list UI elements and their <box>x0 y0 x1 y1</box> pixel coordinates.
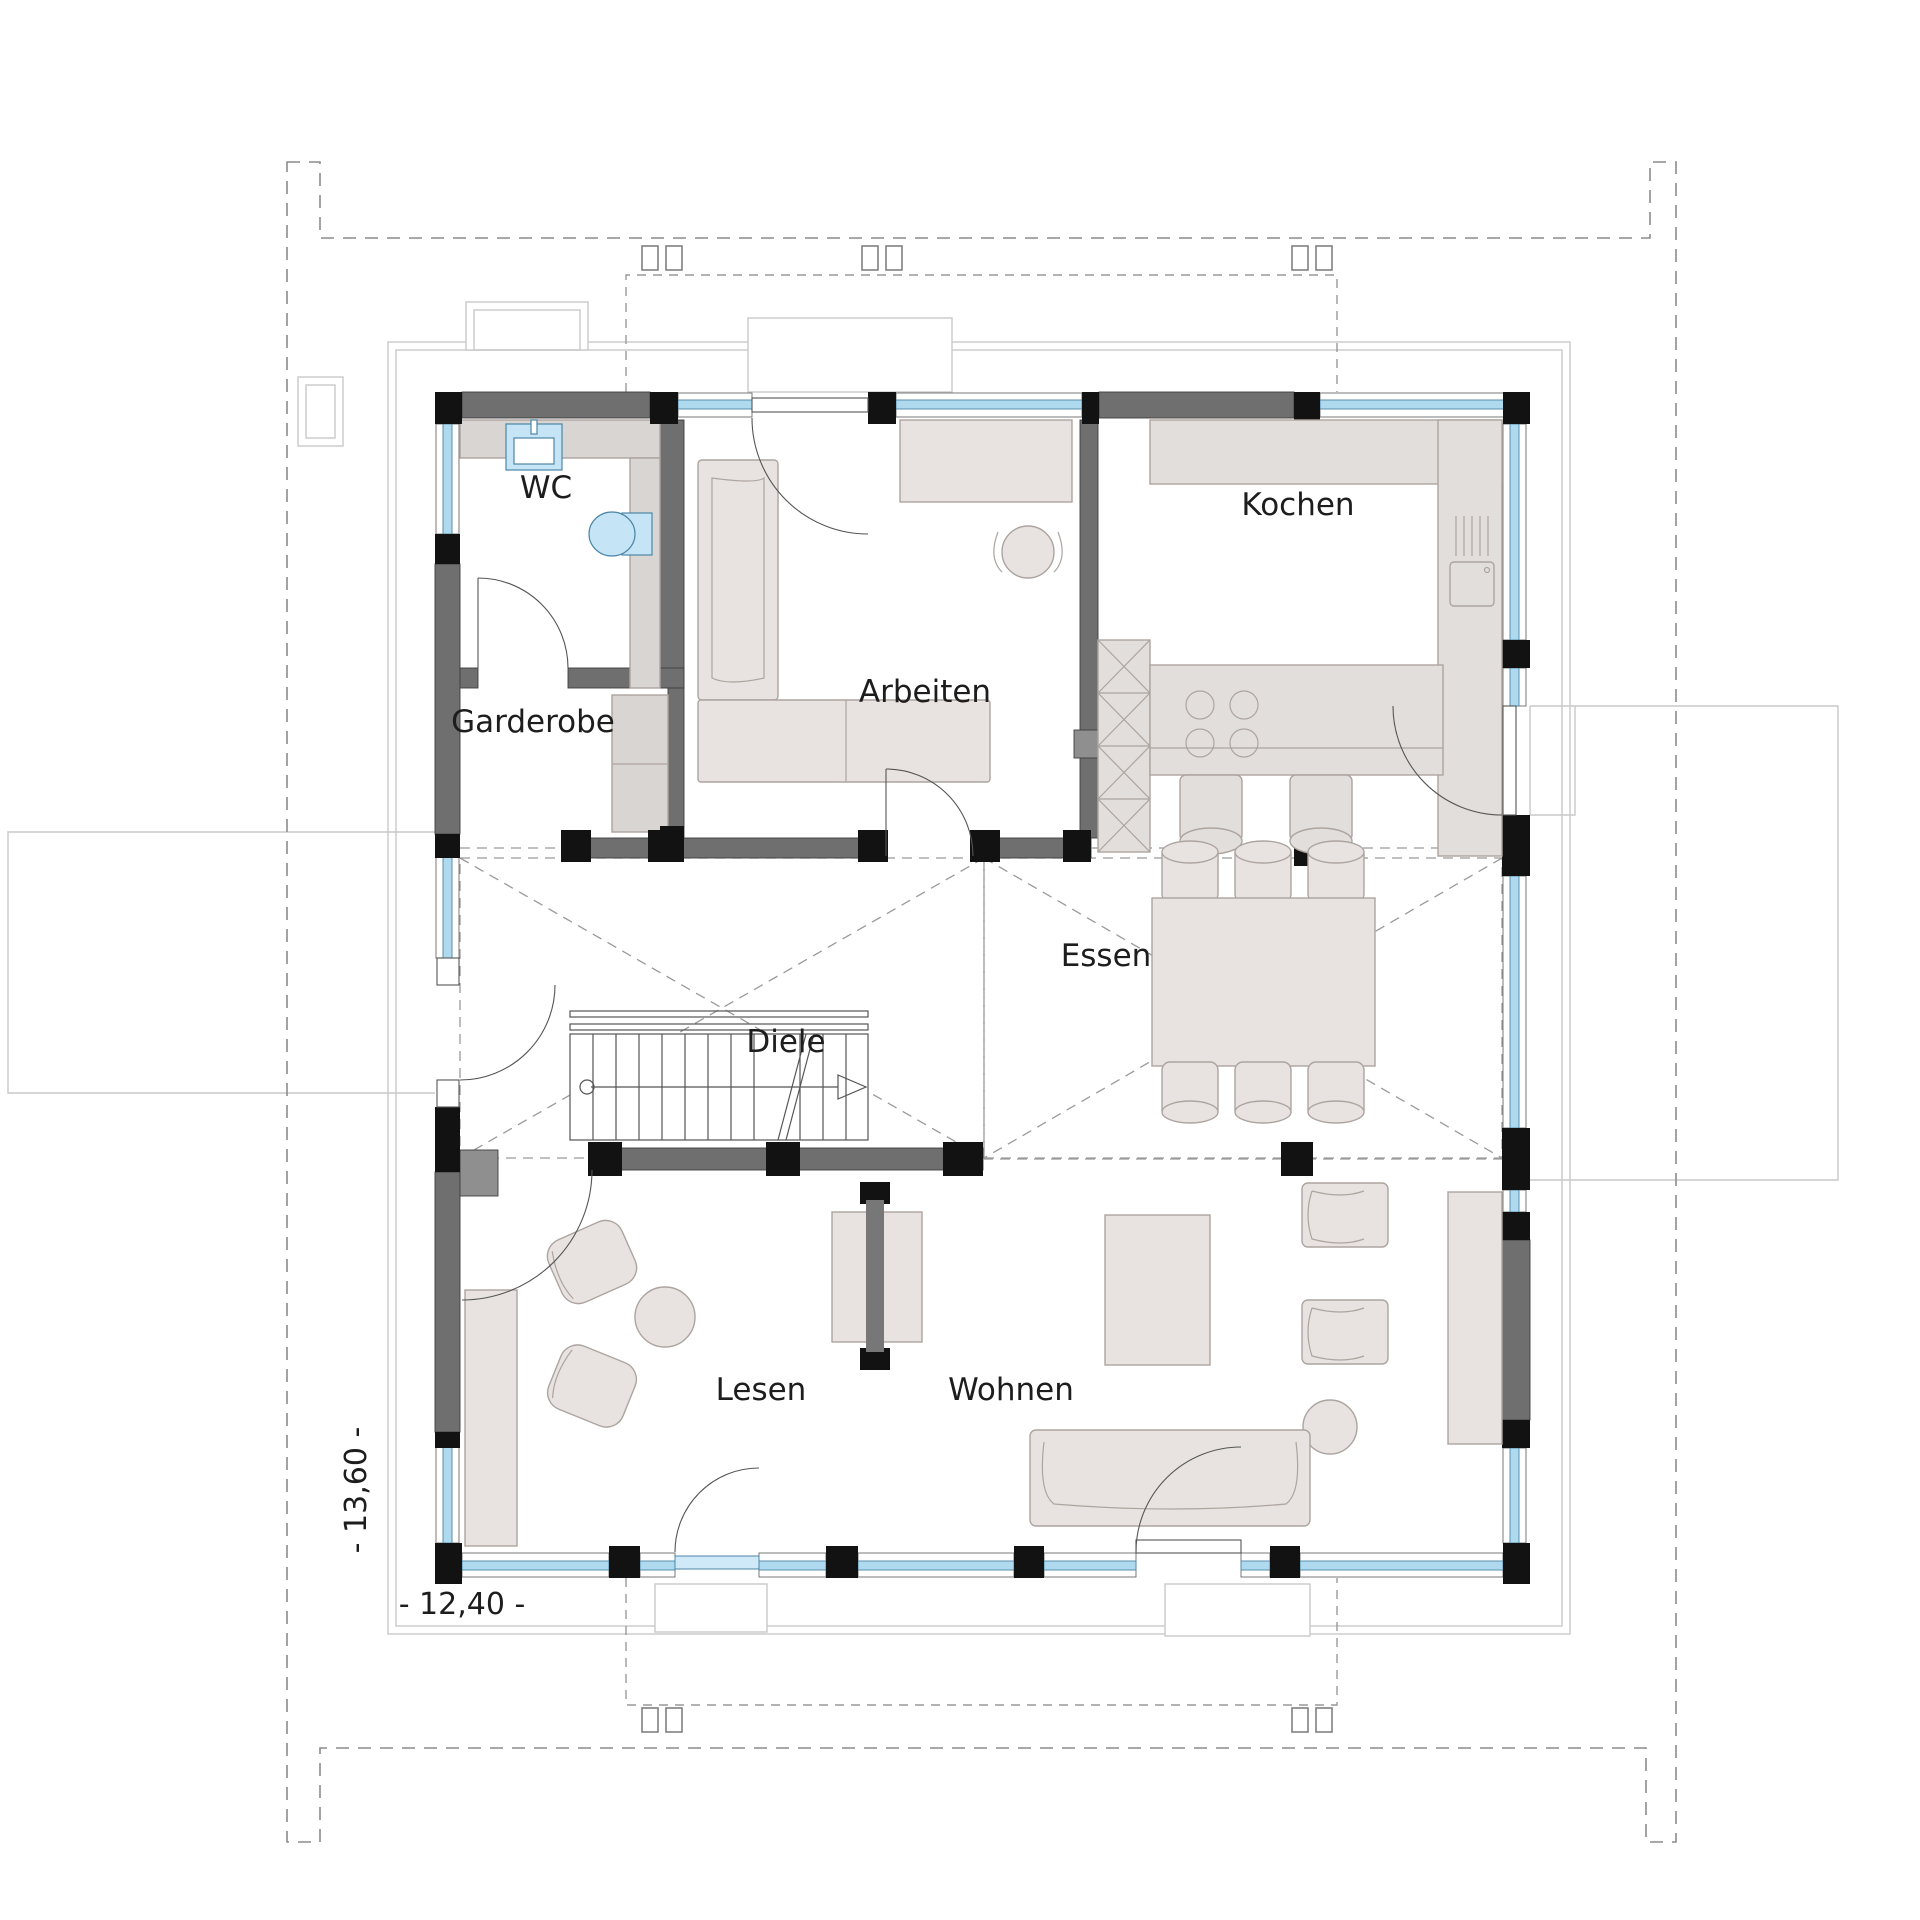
wc-sink <box>506 420 562 470</box>
room-label-kochen: Kochen <box>1241 487 1354 523</box>
wohnen-ottoman <box>1303 1400 1357 1454</box>
arbeiten-sofa <box>698 460 990 782</box>
room-label-lesen: Lesen <box>716 1372 807 1408</box>
room-label-diele: Diele <box>746 1024 825 1060</box>
door-leaf-south-right <box>1136 1540 1241 1553</box>
dimension-height: - 13,60 - <box>339 1427 374 1554</box>
entrance-door-arc <box>460 985 555 1080</box>
porch-outline <box>466 302 588 350</box>
lesen-armchair-1 <box>542 1215 643 1310</box>
entrance-door-frame-bottom <box>437 1080 459 1107</box>
room-label-essen: Essen <box>1061 938 1152 974</box>
floor-plan-page: WC Garderobe Arbeiten Kochen Diele Essen… <box>0 0 1920 1920</box>
dimension-width: - 12,40 - <box>399 1587 526 1622</box>
wc-toilet <box>589 512 652 556</box>
kitchen <box>1098 420 1502 856</box>
door-leaf-north <box>752 398 868 412</box>
room-divider-shelf <box>832 1200 922 1352</box>
desk-chair <box>994 526 1062 578</box>
door-leaf-east <box>1503 706 1516 815</box>
right-terrace <box>1530 706 1838 1180</box>
wohnen-sideboard <box>1448 1192 1502 1444</box>
kitchen-counter-right <box>1438 420 1502 856</box>
entrance-door-frame-top <box>437 958 459 985</box>
door-leaf-south-left <box>675 1556 759 1569</box>
landing-south-right <box>1165 1584 1310 1636</box>
dining-chairs-top <box>1162 841 1364 902</box>
dining-chairs-bottom <box>1162 1062 1364 1123</box>
right-door-landing <box>1530 706 1575 815</box>
lesen-armchair-2 <box>542 1339 642 1432</box>
room-label-wohnen: Wohnen <box>948 1372 1074 1408</box>
wohnen-armchair-2 <box>1302 1300 1388 1364</box>
canopy-outline <box>748 318 952 392</box>
wohnen-armchair-1 <box>1302 1183 1388 1247</box>
landing-south-left <box>655 1584 767 1632</box>
dining-table <box>1152 898 1375 1066</box>
lesen-side-table <box>635 1287 695 1347</box>
left-terrace <box>8 832 435 1093</box>
left-bay-outline <box>298 377 343 446</box>
coffee-table <box>1105 1215 1210 1365</box>
room-label-wc: WC <box>520 470 572 506</box>
floor-plan-drawing: WC Garderobe Arbeiten Kochen Diele Essen… <box>0 0 1920 1920</box>
room-label-arbeiten: Arbeiten <box>859 674 991 710</box>
lesen-sideboard <box>465 1290 517 1546</box>
room-label-garderobe: Garderobe <box>451 704 615 740</box>
kitchen-island <box>1150 665 1443 775</box>
desk <box>900 420 1072 502</box>
sofa <box>1030 1430 1310 1526</box>
